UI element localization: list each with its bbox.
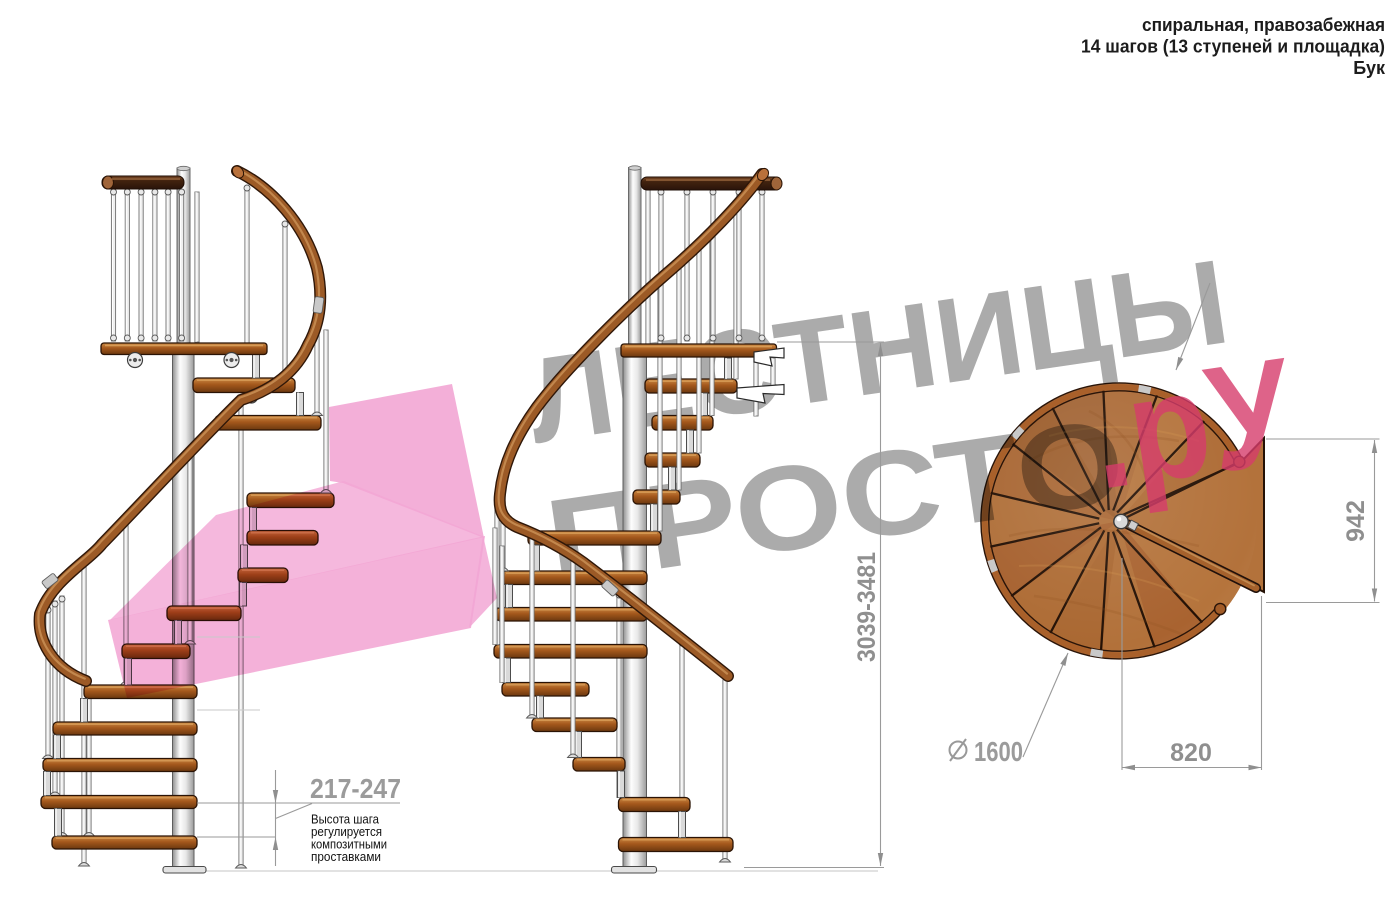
svg-text:942: 942 [1342,500,1370,542]
svg-text:.рУ: .рУ [1080,325,1304,520]
svg-text:820: 820 [1170,739,1212,767]
svg-text:217-247: 217-247 [310,773,401,804]
svg-text:проставками: проставками [311,849,381,864]
svg-text:Бук: Бук [1353,58,1386,78]
svg-text:1600: 1600 [974,736,1023,767]
svg-text:14 шагов (13 ступеней и площад: 14 шагов (13 ступеней и площадка) [1081,37,1385,57]
svg-text:3039-3481: 3039-3481 [853,552,881,662]
svg-text:спиральная, правозабежная: спиральная, правозабежная [1142,15,1385,35]
